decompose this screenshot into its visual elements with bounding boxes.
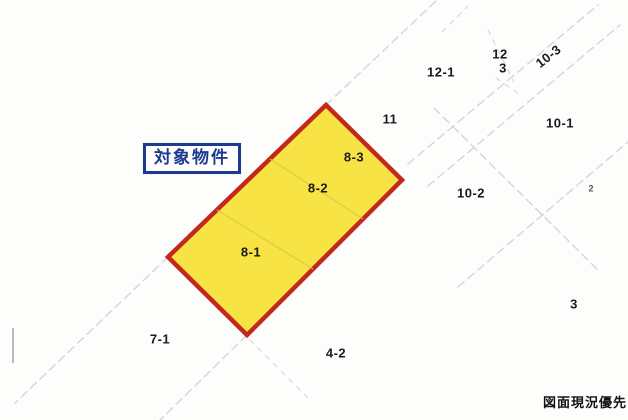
parcel-label-8-2: 8-2 bbox=[308, 180, 328, 195]
survey-line bbox=[496, 78, 518, 93]
survey-line bbox=[408, 5, 598, 164]
parcel-label-2-fragment: 2 bbox=[588, 183, 593, 193]
parcel-label-8-3: 8-3 bbox=[344, 149, 364, 164]
parcel-label-8-1: 8-1 bbox=[241, 244, 261, 259]
cadastral-map-canvas: 8-1 8-2 8-3 11 12-1 12 3 10-3 10-1 10-2 … bbox=[0, 0, 628, 420]
survey-line bbox=[152, 335, 247, 420]
parcel-label-12-3: 3 bbox=[499, 60, 507, 75]
parcel-label-10-3: 10-3 bbox=[533, 42, 564, 71]
parcel-label-3: 3 bbox=[570, 296, 578, 311]
survey-line bbox=[15, 257, 168, 403]
target-parcel-highlight bbox=[168, 105, 402, 335]
cadastral-map: 8-1 8-2 8-3 11 12-1 12 3 10-3 10-1 10-2 … bbox=[0, 0, 628, 420]
parcel-label-10-2: 10-2 bbox=[457, 185, 485, 200]
target-property-label: 対象物件 bbox=[143, 143, 241, 174]
parcel-label-12: 12 bbox=[492, 46, 507, 61]
survey-line bbox=[442, 6, 468, 32]
parcel-label-7-1: 7-1 bbox=[150, 331, 170, 346]
survey-line bbox=[428, 25, 620, 186]
survey-line bbox=[326, 0, 437, 105]
parcel-label-11: 11 bbox=[383, 111, 398, 126]
parcel-label-12-1: 12-1 bbox=[427, 64, 455, 79]
parcel-label-4-2: 4-2 bbox=[326, 345, 346, 360]
survey-line bbox=[250, 340, 308, 398]
map-disclaimer-note: 図面現況優先 bbox=[543, 392, 627, 411]
parcel-label-10-1: 10-1 bbox=[546, 115, 574, 130]
survey-line bbox=[458, 142, 628, 287]
